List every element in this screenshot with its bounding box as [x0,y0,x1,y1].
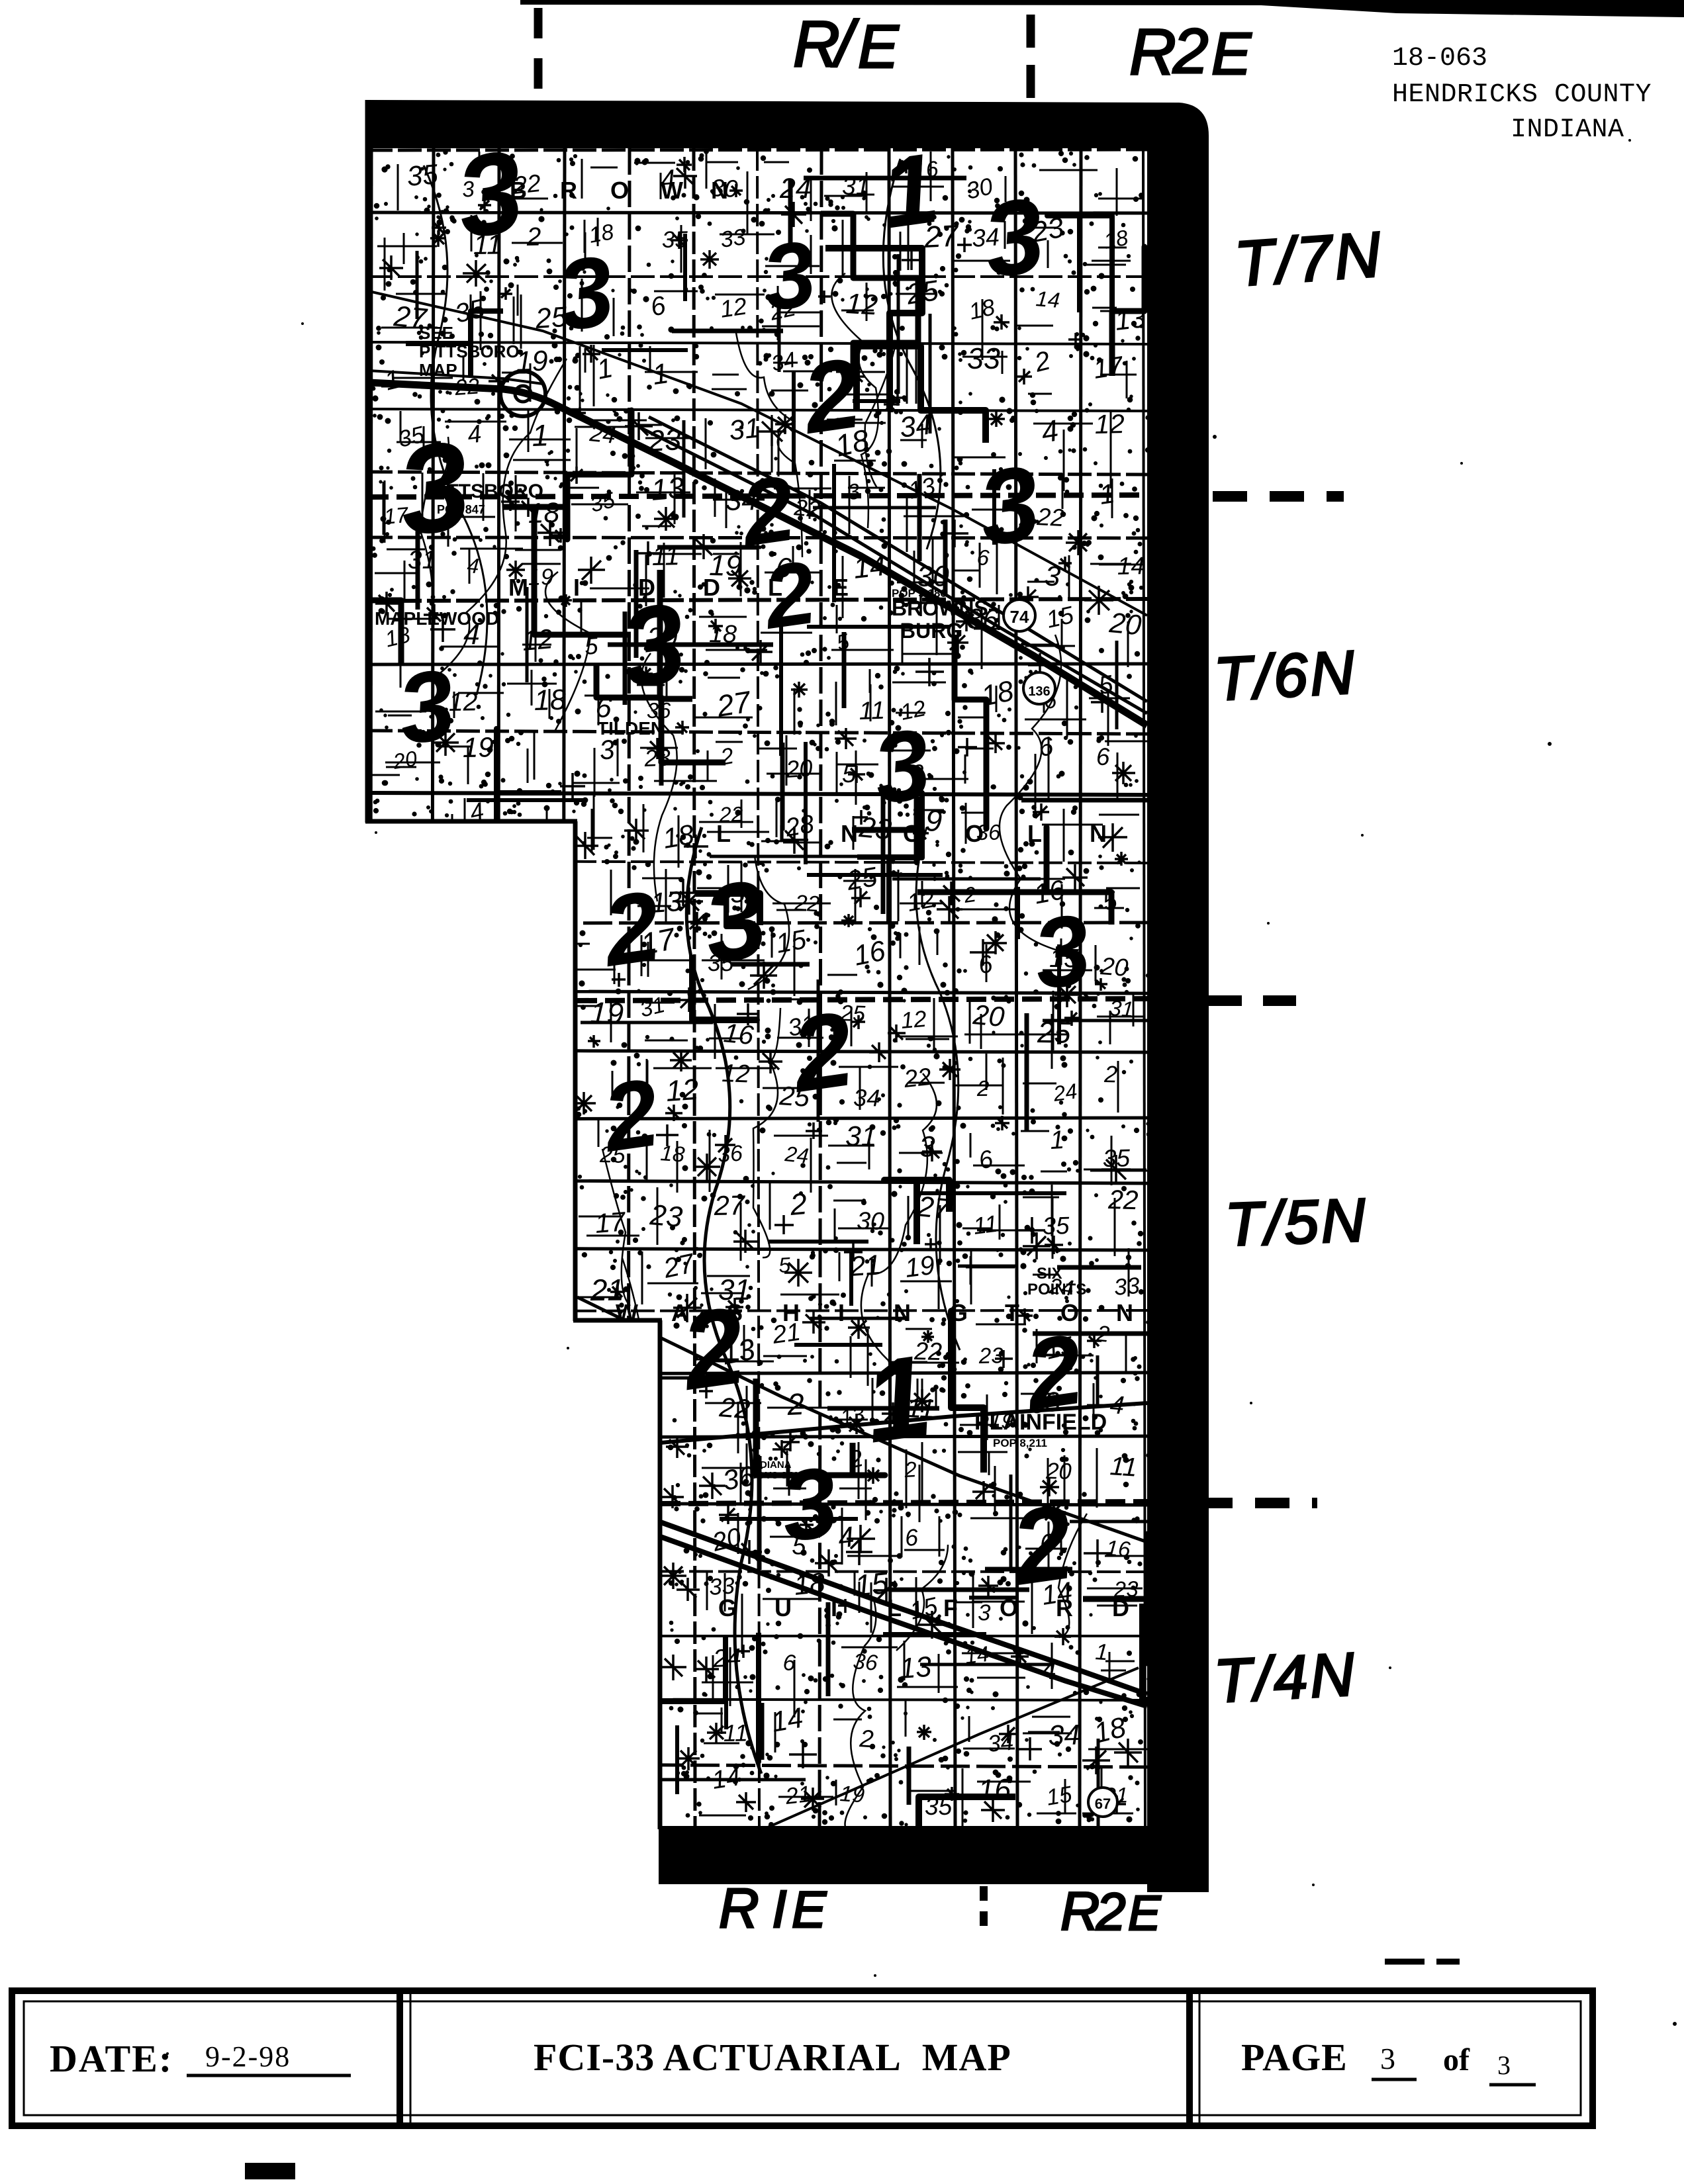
svg-text:E: E [858,13,900,81]
svg-text:16: 16 [1105,1536,1131,1563]
svg-text:14: 14 [852,549,888,585]
svg-text:20: 20 [971,999,1006,1032]
svg-text:23: 23 [978,1343,1004,1369]
svg-text:23: 23 [648,1199,684,1234]
svg-text:R: R [1060,1882,1099,1942]
svg-text:15: 15 [774,924,809,959]
svg-text:5: 5 [842,760,857,788]
svg-text:34: 34 [1048,1719,1080,1752]
svg-text:L: L [1027,820,1042,847]
svg-text:PAGE: PAGE [1241,2036,1348,2079]
svg-text:35: 35 [1042,1212,1070,1240]
svg-text:I: I [831,1594,837,1621]
svg-text:30: 30 [857,1206,885,1235]
svg-text:2: 2 [1103,1061,1118,1087]
svg-text:25: 25 [1037,1015,1072,1050]
svg-text:27: 27 [713,1189,746,1221]
svg-text:20: 20 [1107,607,1143,641]
svg-text:24: 24 [779,173,812,205]
svg-text:15: 15 [1045,1782,1074,1811]
svg-text:21: 21 [784,1782,812,1809]
svg-text:I: I [838,1299,845,1326]
svg-text:G: G [949,1299,968,1326]
svg-text:6: 6 [782,1650,796,1676]
svg-text:BOYS SCHOOL: BOYS SCHOOL [750,1470,823,1481]
svg-text:3: 3 [978,1600,991,1625]
svg-text:27: 27 [915,1191,953,1226]
svg-text:2: 2 [858,1724,874,1752]
svg-text:D: D [703,574,720,601]
svg-text:12: 12 [900,1007,927,1034]
svg-text:1: 1 [1094,1639,1109,1665]
svg-text:T/7N: T/7N [1233,219,1385,300]
svg-text:N: N [1116,1299,1133,1326]
svg-text:24: 24 [588,420,617,449]
svg-text:I: I [573,574,580,601]
svg-text:18: 18 [978,675,1016,713]
svg-text:22: 22 [1107,1184,1139,1215]
svg-text:5: 5 [778,1253,791,1277]
svg-text:5: 5 [583,632,599,660]
svg-text:N: N [841,820,858,847]
svg-text:I: I [778,820,785,847]
svg-text:R: R [1129,15,1176,88]
svg-text:4: 4 [1109,1390,1125,1420]
svg-text:N: N [1090,820,1107,847]
svg-text:L: L [887,1594,902,1621]
svg-text:36: 36 [717,1141,743,1167]
svg-text:18: 18 [709,619,737,648]
svg-text:O: O [1000,1594,1018,1621]
svg-text:PLAINFIELD: PLAINFIELD [974,1410,1107,1435]
svg-text:2: 2 [788,1187,808,1222]
svg-text:R: R [719,1877,759,1939]
svg-text:E: E [1128,1886,1162,1940]
svg-text:3: 3 [919,1130,937,1163]
svg-text:28: 28 [782,809,816,842]
svg-text:33: 33 [719,224,747,253]
svg-text:2: 2 [1095,1321,1111,1347]
svg-text:W: W [616,1299,638,1326]
svg-text:HENDRICKS COUNTY: HENDRICKS COUNTY [1392,80,1652,110]
svg-text:12: 12 [1094,408,1125,439]
svg-text:O: O [965,820,984,847]
svg-text:16: 16 [978,1773,1011,1807]
svg-text:N: N [711,177,728,204]
svg-text:18-063: 18-063 [1392,44,1487,73]
svg-text:T/5N: T/5N [1224,1187,1369,1259]
svg-text:MAPLEWOOD: MAPLEWOOD [375,608,499,629]
svg-text:R: R [793,7,840,80]
svg-text:25: 25 [904,275,941,311]
svg-text:INDIANA: INDIANA [750,1459,792,1471]
svg-text:T: T [1005,1299,1019,1326]
svg-text:PITTSBORO: PITTSBORO [428,480,543,502]
svg-text:2: 2 [976,1077,990,1101]
svg-text:11: 11 [1109,1451,1138,1482]
svg-text:TILDEN: TILDEN [597,718,664,739]
svg-text:3: 3 [1043,560,1062,593]
svg-text:F: F [943,1594,958,1621]
svg-text:33: 33 [967,341,1000,375]
svg-text:E: E [1211,21,1252,87]
svg-text:N: N [894,1299,911,1326]
svg-text:20: 20 [784,754,814,784]
svg-text:35: 35 [925,1792,953,1820]
svg-text:A: A [671,1299,688,1326]
svg-text:T/4N: T/4N [1213,1641,1358,1715]
svg-text:9-2-98: 9-2-98 [205,2040,291,2073]
svg-text:24: 24 [783,1142,810,1168]
svg-text:31: 31 [727,412,761,446]
svg-text:R: R [560,177,577,204]
svg-text:18: 18 [661,819,697,854]
svg-text:14: 14 [963,1641,990,1668]
svg-text:11: 11 [651,540,680,571]
svg-text:L: L [716,820,731,847]
svg-text:2: 2 [1172,16,1208,87]
svg-text:C: C [903,820,920,847]
svg-text:SIX: SIX [1037,1265,1062,1283]
svg-text:INDIANA: INDIANA [1511,115,1624,145]
svg-text:18: 18 [792,1567,827,1601]
svg-text:L: L [768,574,782,601]
svg-text:S: S [727,1299,743,1326]
svg-text:E: E [792,1880,827,1938]
svg-text:16: 16 [722,1017,755,1050]
svg-text:14: 14 [769,1702,806,1738]
svg-text:22: 22 [792,494,821,523]
svg-text:3: 3 [1497,2050,1511,2080]
svg-text:W: W [661,177,683,204]
svg-text:12: 12 [521,623,554,657]
svg-text:1: 1 [1049,1126,1065,1155]
svg-text:22: 22 [453,374,481,400]
svg-text:11: 11 [972,1210,1000,1240]
svg-text:13: 13 [898,1651,933,1685]
svg-text:13: 13 [649,471,685,507]
svg-text:E: E [833,574,849,601]
svg-text:PITTSBORO: PITTSBORO [419,341,520,361]
svg-text:2: 2 [1096,1882,1126,1941]
svg-text:19: 19 [590,995,625,1030]
svg-text:DATE:: DATE: [50,2037,173,2080]
svg-text:25: 25 [844,861,880,896]
svg-text:D: D [638,574,655,601]
svg-text:18: 18 [534,684,567,717]
svg-text:BURG: BURG [900,619,962,643]
svg-text:11: 11 [723,1719,748,1747]
svg-text:74: 74 [1010,607,1029,627]
svg-text:12: 12 [665,1073,700,1108]
svg-text:16: 16 [851,935,888,972]
svg-text:23: 23 [647,422,682,458]
svg-text:136: 136 [1028,684,1050,699]
svg-text:POP 5,186: POP 5,186 [892,587,947,600]
svg-text:23: 23 [643,745,671,772]
svg-text:19: 19 [904,1250,937,1283]
svg-text:U: U [774,1594,792,1621]
svg-text:14: 14 [710,1762,743,1795]
svg-text:35: 35 [1102,1144,1130,1172]
svg-text:34: 34 [986,1729,1014,1757]
svg-text:13: 13 [839,1402,866,1430]
svg-text:20: 20 [1045,1459,1072,1484]
svg-text:BROWNS-: BROWNS- [892,596,995,620]
svg-text:31: 31 [1108,996,1135,1023]
svg-text:B: B [510,177,527,204]
svg-text:20: 20 [1099,952,1129,981]
svg-text:I: I [757,1880,786,1938]
svg-text:17: 17 [594,1206,628,1239]
svg-text:4: 4 [466,553,480,578]
svg-text:35: 35 [406,158,440,192]
svg-text:4: 4 [1041,1655,1056,1685]
svg-text:31: 31 [842,172,870,200]
svg-text:21: 21 [848,1249,882,1282]
svg-text:34: 34 [769,347,798,376]
svg-text:POP 847: POP 847 [437,503,485,516]
svg-text:19: 19 [528,565,553,590]
svg-text:33: 33 [1113,1273,1141,1300]
svg-text:2: 2 [786,1387,805,1422]
svg-text:R: R [1056,1594,1073,1621]
svg-text:22: 22 [793,891,820,917]
svg-text:M: M [508,574,528,601]
svg-text:12: 12 [722,1060,751,1088]
svg-text:27: 27 [714,684,755,723]
svg-text:POINTS: POINTS [1027,1281,1086,1298]
svg-text:24: 24 [1051,1079,1078,1106]
svg-text:19: 19 [462,731,494,763]
svg-text:MAP: MAP [419,360,457,380]
svg-text:34: 34 [898,408,933,444]
svg-text:T/6N: T/6N [1213,639,1358,713]
svg-text:19: 19 [839,1782,865,1808]
svg-text:35: 35 [662,227,688,253]
svg-text:POP 8,211: POP 8,211 [993,1437,1047,1449]
svg-text:of: of [1443,2042,1470,2077]
svg-text:22: 22 [902,1063,933,1093]
svg-text:SEE: SEE [419,323,453,343]
svg-text:H: H [782,1299,800,1326]
svg-text:31: 31 [845,1120,877,1152]
svg-text:15: 15 [853,1566,890,1603]
svg-text:FCI-33 ACTUARIAL MAP: FCI-33 ACTUARIAL MAP [534,2036,1011,2079]
svg-text:3: 3 [1380,2042,1395,2075]
svg-text:67: 67 [1095,1796,1111,1812]
svg-text:O: O [610,177,629,204]
svg-text:O: O [1060,1299,1079,1326]
svg-text:18: 18 [1101,225,1130,253]
svg-text:12: 12 [845,288,878,322]
svg-text:12: 12 [905,885,937,917]
svg-text:G: G [718,1594,737,1621]
svg-text:36: 36 [852,1649,878,1676]
svg-text:13: 13 [1113,302,1147,336]
svg-text:12: 12 [718,292,749,322]
svg-text:6: 6 [904,1524,919,1551]
svg-text:14: 14 [1117,551,1145,580]
svg-text:24: 24 [712,1644,741,1673]
svg-text:17: 17 [1092,351,1126,385]
svg-text:19: 19 [516,345,549,378]
svg-text:1: 1 [532,418,549,453]
svg-text:6: 6 [1096,743,1110,770]
svg-text:D: D [1112,1594,1129,1621]
